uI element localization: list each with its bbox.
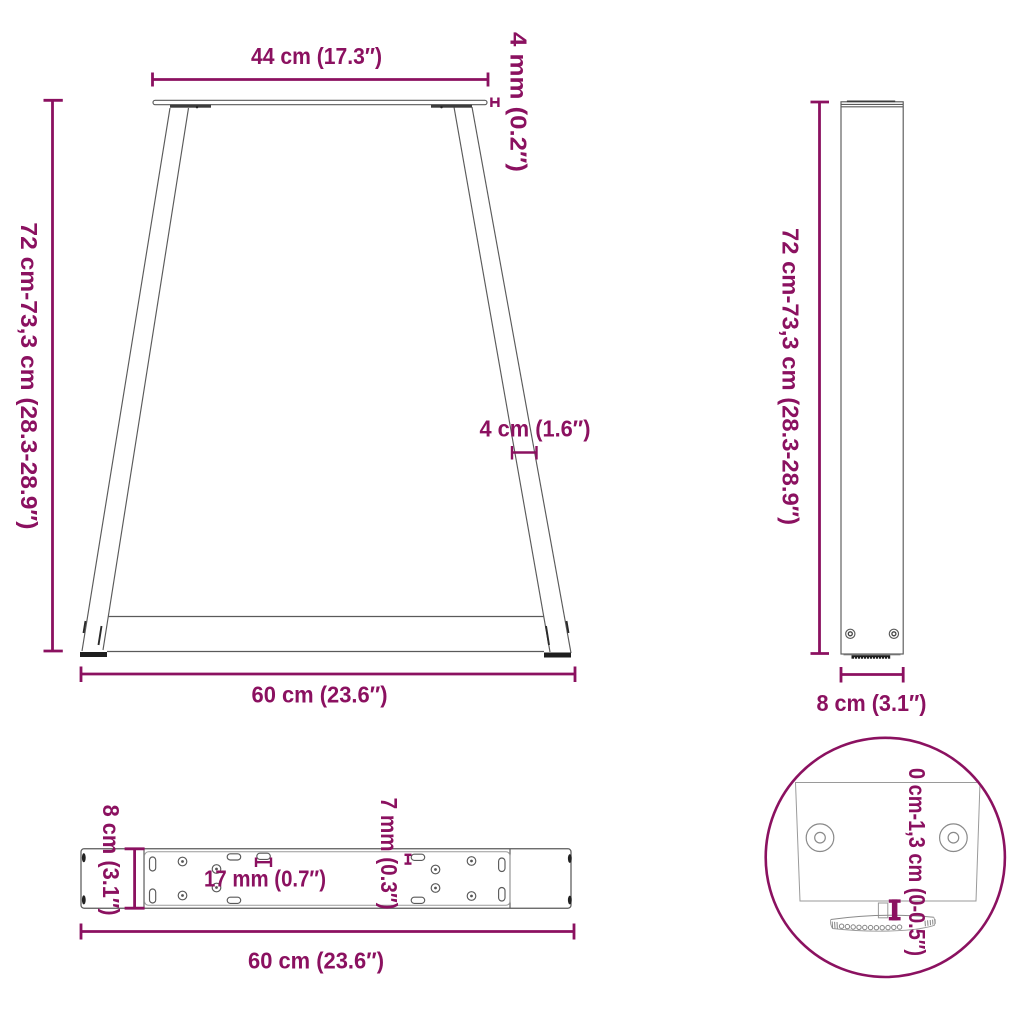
svg-text:8 cm (3.1″): 8 cm (3.1″) [817,690,927,716]
svg-text:7 mm (0.3″): 7 mm (0.3″) [376,798,402,910]
svg-text:8 cm (3.1″): 8 cm (3.1″) [98,805,124,916]
svg-text:44 cm (17.3″): 44 cm (17.3″) [251,43,382,69]
svg-text:4 mm (0.2″): 4 mm (0.2″) [506,32,532,172]
svg-text:17 mm (0.7″): 17 mm (0.7″) [204,866,326,892]
svg-text:4 cm (1.6″): 4 cm (1.6″) [480,416,591,442]
svg-text:0 cm-1,3 cm (0-0.5″): 0 cm-1,3 cm (0-0.5″) [904,768,930,956]
svg-text:60 cm (23.6″): 60 cm (23.6″) [248,948,384,974]
svg-text:72 cm-73,3 cm (28.3-28.9″): 72 cm-73,3 cm (28.3-28.9″) [16,222,42,529]
svg-text:60 cm (23.6″): 60 cm (23.6″) [252,682,388,708]
svg-text:72 cm-73,3 cm (28.3-28.9″): 72 cm-73,3 cm (28.3-28.9″) [777,228,803,525]
